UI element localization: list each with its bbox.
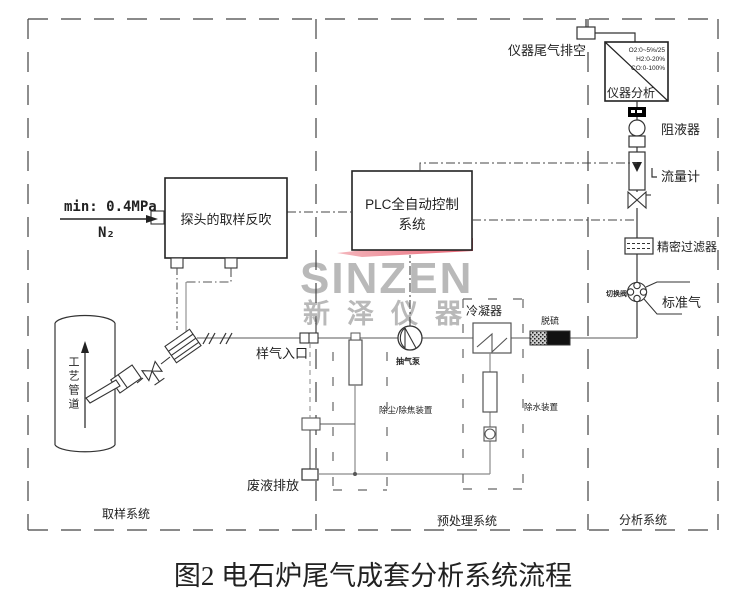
needle-valve (628, 192, 651, 208)
flow-meter (629, 152, 657, 190)
water-removal-label: 除水装置 (524, 402, 559, 412)
condenser-label: 冷凝器 (466, 303, 502, 318)
analyzer-range-o2: O2:0~5%/25 (629, 47, 666, 54)
precision-filter-label: 精密过滤器 (657, 239, 717, 254)
dust-removal-filter (349, 333, 362, 385)
blowback-port-right (225, 258, 237, 268)
analyzer-range-h2: H2:0-20% (636, 56, 665, 63)
section-analysis-label: 分析系统 (619, 513, 667, 527)
pipe-flow-tag: 工艺管道 (67, 356, 80, 412)
blowback-port-left (171, 258, 183, 268)
pump-label: 抽气泵 (396, 356, 420, 366)
gas-flow-arrow (81, 341, 89, 428)
drain-fitting (302, 418, 320, 430)
desulfurizer (530, 331, 570, 345)
condenser (473, 323, 511, 353)
switch-valve-label: 切换阀 (606, 289, 627, 298)
exhaust-vent-label: 仪器尾气排空 (508, 43, 586, 58)
liquid-trap (629, 120, 645, 147)
flow-meter-label: 流量计 (661, 169, 700, 184)
section-sampling-label: 取样系统 (102, 506, 150, 521)
standard-gas-label: 标准气 (662, 295, 701, 310)
analyzer-range-co: CO:0-100% (631, 65, 665, 72)
precision-filter (625, 238, 653, 254)
sampling-probe-assembly (86, 329, 201, 403)
desulfurizer-label: 脱硫 (541, 315, 559, 326)
n2-arrow (60, 215, 158, 223)
waste-discharge-fitting (302, 469, 318, 480)
probe-blowback-label: 探头的取样反吹 (180, 212, 271, 227)
condensate-drain (484, 427, 496, 441)
exhaust-vent-fitting (577, 27, 595, 39)
flow-meter-leader (652, 168, 657, 177)
dust-removal-label: 除尘/除焦装置 (379, 405, 433, 415)
analyzer-label: 仪器分析 (607, 86, 655, 100)
blowback-lines (177, 268, 231, 332)
switch-valve (627, 282, 646, 301)
plc-label-line1: PLC全自动控制 (365, 196, 459, 212)
sample-inlet-fitting (300, 333, 318, 343)
liquid-trap-label: 阻液器 (661, 122, 700, 137)
water-removal-device (483, 372, 497, 412)
figure-title: 图2 电石炉尾气成套分析系统流程 (174, 561, 572, 591)
flow-diagram-page: SINZEN 新泽仪器 仪器尾气排空 O2:0~5%/25 H2:0-20% C… (0, 0, 745, 601)
n2-pressure-label: min: 0.4MPa (64, 199, 157, 215)
inline-connector (628, 107, 646, 117)
probe-flange (165, 329, 201, 363)
watermark-brand-cn: 新泽仪器 (303, 298, 479, 329)
diagram-svg: SINZEN 新泽仪器 仪器尾气排空 O2:0~5%/25 H2:0-20% C… (0, 0, 745, 601)
suction-pump (398, 326, 422, 350)
section-pretreatment-label: 预处理系统 (437, 514, 497, 528)
probe-valve (142, 361, 166, 386)
sinzen-watermark: SINZEN 新泽仪器 (300, 238, 479, 329)
n2-label: N₂ (98, 225, 115, 241)
watermark-brand: SINZEN (300, 254, 473, 303)
waste-discharge-label: 废液排放 (247, 478, 299, 493)
control-line-top (420, 163, 637, 171)
plc-label-line2: 系统 (399, 217, 426, 232)
waste-collect-line (318, 441, 490, 474)
gas-analyzer: O2:0~5%/25 H2:0-20% CO:0-100% 仪器分析 (605, 42, 668, 101)
waste-junction (353, 472, 357, 476)
sample-inlet-label: 样气入口 (256, 346, 308, 361)
